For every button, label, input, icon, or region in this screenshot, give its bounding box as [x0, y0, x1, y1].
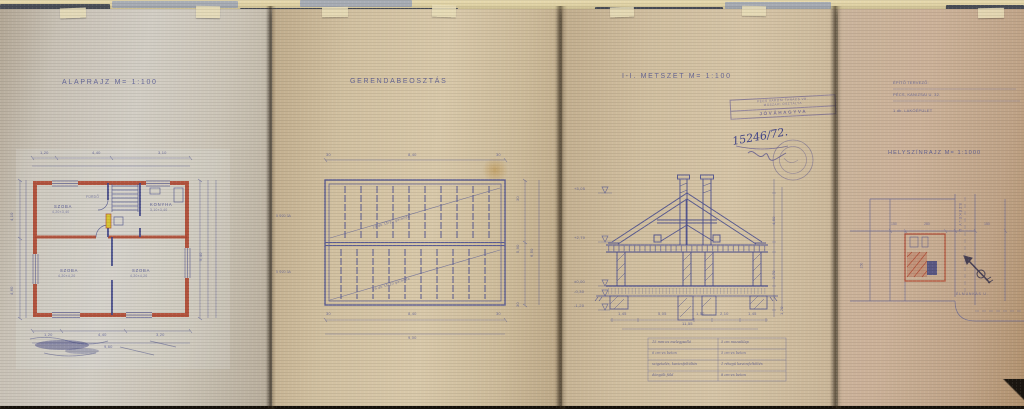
diagonal-callouts: [330, 188, 500, 300]
level-label: -1,20: [574, 304, 584, 308]
dim-label: 4,40: [98, 333, 107, 337]
layer-spec: döngölt föld: [652, 374, 673, 378]
beams-lower: [341, 249, 485, 299]
room-size: 3,10×3,40: [150, 209, 167, 212]
sheet-edge-shadow: [555, 6, 567, 409]
street-name-horizontal: ÉLMUNKÁS U.: [956, 293, 989, 297]
dim-label: 1,45: [748, 312, 757, 316]
footings: [610, 296, 767, 320]
tape-tab: [322, 7, 348, 17]
layer-spec: szigetelés, kavicsfeltöltés: [652, 363, 697, 367]
parcel-grid: [850, 194, 1024, 321]
dim-label: 30: [326, 312, 331, 316]
dim-label: 4,10: [10, 212, 14, 221]
photo-corner-shadow: [1002, 379, 1024, 409]
section-drawing: [562, 9, 838, 406]
site-plan-drawing: [838, 9, 1024, 406]
tape-tab: [978, 8, 1004, 18]
dim-label: 3,10: [158, 151, 167, 155]
tape-tab: [742, 6, 766, 16]
dim-label: 150: [861, 263, 865, 269]
dim-label: 1,20: [780, 306, 784, 315]
dim-label: 8,40: [408, 312, 417, 316]
dim-label: 8,40: [408, 153, 417, 157]
rebar-label: 5 Φ20 3A: [276, 215, 291, 219]
layer-spec: 6 cm-es beton: [652, 352, 677, 356]
beam-layout-drawing: [272, 9, 562, 406]
layer-spec: 8 cm-es beton: [721, 374, 746, 378]
building-footprint: [905, 234, 945, 281]
dim-label: 150: [984, 223, 990, 227]
yellow-highlight-marker: [106, 214, 111, 228]
dim-label: 2,10: [720, 312, 729, 316]
tape-tab: [610, 7, 634, 18]
header-line: 1 db. LAKÓÉPÜLET: [893, 109, 932, 113]
sheet-title: GERENDABEOSZTÁS: [350, 78, 447, 85]
dim-label: 30: [496, 153, 501, 157]
signature-and-seal: [736, 140, 813, 180]
room-label: SZOBA: [54, 205, 72, 209]
dim-label: 2,70: [772, 270, 776, 279]
layer-spec: 5 cm mozaiklap: [721, 341, 749, 345]
dim-label: 30: [326, 153, 331, 157]
dim-label: 1,20: [40, 151, 49, 155]
sheet-floor-plan: ALAPRAJZ M= 1:100 SZOBA 4,20×3,40 FÜRDŐ …: [0, 9, 272, 406]
level-label: ±0,00: [574, 280, 585, 284]
dim-label: 1,50: [696, 312, 705, 316]
dim-label: 280: [924, 223, 930, 227]
sheet-title: HELYSZÍNRAJZ M= 1:1000: [888, 151, 981, 157]
dim-label: 1,45: [618, 312, 627, 316]
dim-label: 4,60: [10, 286, 14, 295]
dim-label: 1,20: [44, 333, 53, 337]
tape-tab: [60, 8, 86, 19]
sheet-beam-layout: GERENDABEOSZTÁS 19 db 15/20 gerenda 19 d…: [272, 9, 562, 406]
sheet-edge-shadow: [266, 6, 276, 409]
dim-label: 150: [891, 223, 897, 227]
dim-label: 30: [516, 196, 520, 201]
dim-total-label: 6,50: [530, 248, 534, 257]
sheet-title: I-I. METSZET M= 1:100: [622, 73, 732, 80]
layer-spec: 5 cm-es beton: [721, 352, 746, 356]
photo-of-architectural-plans: ALAPRAJZ M= 1:100 SZOBA 4,20×3,40 FÜRDŐ …: [0, 0, 1024, 409]
level-label: +5,05: [574, 187, 585, 191]
room-label: SZOBA: [60, 269, 78, 273]
dim-label: 30: [516, 302, 520, 307]
floor-plan-drawing: [0, 9, 272, 406]
north-arrow: [964, 256, 993, 283]
dim-label: 3,20: [156, 333, 165, 337]
room-label: KONYHA: [150, 203, 172, 207]
ceiling-band: [606, 245, 768, 252]
dim-total-label: 9,60: [104, 345, 113, 349]
walls: [617, 252, 761, 286]
rail-clamp-bar: [725, 2, 831, 9]
level-label: +2,70: [574, 236, 585, 240]
room-size: 4,20×4,20: [130, 275, 147, 278]
level-label: -0,30: [574, 290, 584, 294]
room-label: SZOBA: [132, 269, 150, 273]
slab-outline: [325, 180, 505, 305]
dim-label: 4,40: [92, 151, 101, 155]
rail-clamp-bar: [300, 0, 412, 7]
sheet-section: I-I. METSZET M= 1:100 PÉCS VÁROSI TANÁCS…: [562, 9, 838, 406]
dim-total-label: 9,00: [408, 336, 417, 340]
dim-label: 4,50: [772, 216, 776, 225]
level-markers: [602, 187, 608, 310]
room-size: 4,20×4,20: [58, 275, 75, 278]
sheet-site-plan: ÉPÍTŐ TERVEZŐ: PÉCS, KANIZSAI U. 32. 1 d…: [838, 9, 1024, 406]
dim-label: 5,90: [516, 244, 520, 253]
layer-spec: 15 mm-es melegpadló: [652, 341, 691, 345]
room-size: 4,20×3,40: [52, 211, 69, 214]
sheet-edge-shadow: [830, 6, 842, 409]
tape-tab: [432, 5, 456, 18]
street-name-vertical: SZÉKELY U.: [957, 203, 961, 235]
sheet-title: ALAPRAJZ M= 1:100: [62, 79, 158, 86]
dim-total-label: 11,55: [682, 322, 693, 326]
chimneys: [678, 175, 714, 245]
room-label: FÜRDŐ: [86, 196, 99, 199]
layer-spec: 1 rétegű kavicsfeltöltés: [721, 363, 763, 367]
header-line: PÉCS, KANIZSAI U. 32.: [893, 93, 940, 97]
tape-tab: [196, 6, 220, 18]
dim-label: 30: [496, 312, 501, 316]
header-line: ÉPÍTŐ TERVEZŐ:: [893, 81, 929, 85]
dim-label: 9,40: [199, 252, 203, 261]
dim-label: 5,05: [658, 312, 667, 316]
rebar-label: 5 Φ20 3A: [276, 271, 291, 275]
